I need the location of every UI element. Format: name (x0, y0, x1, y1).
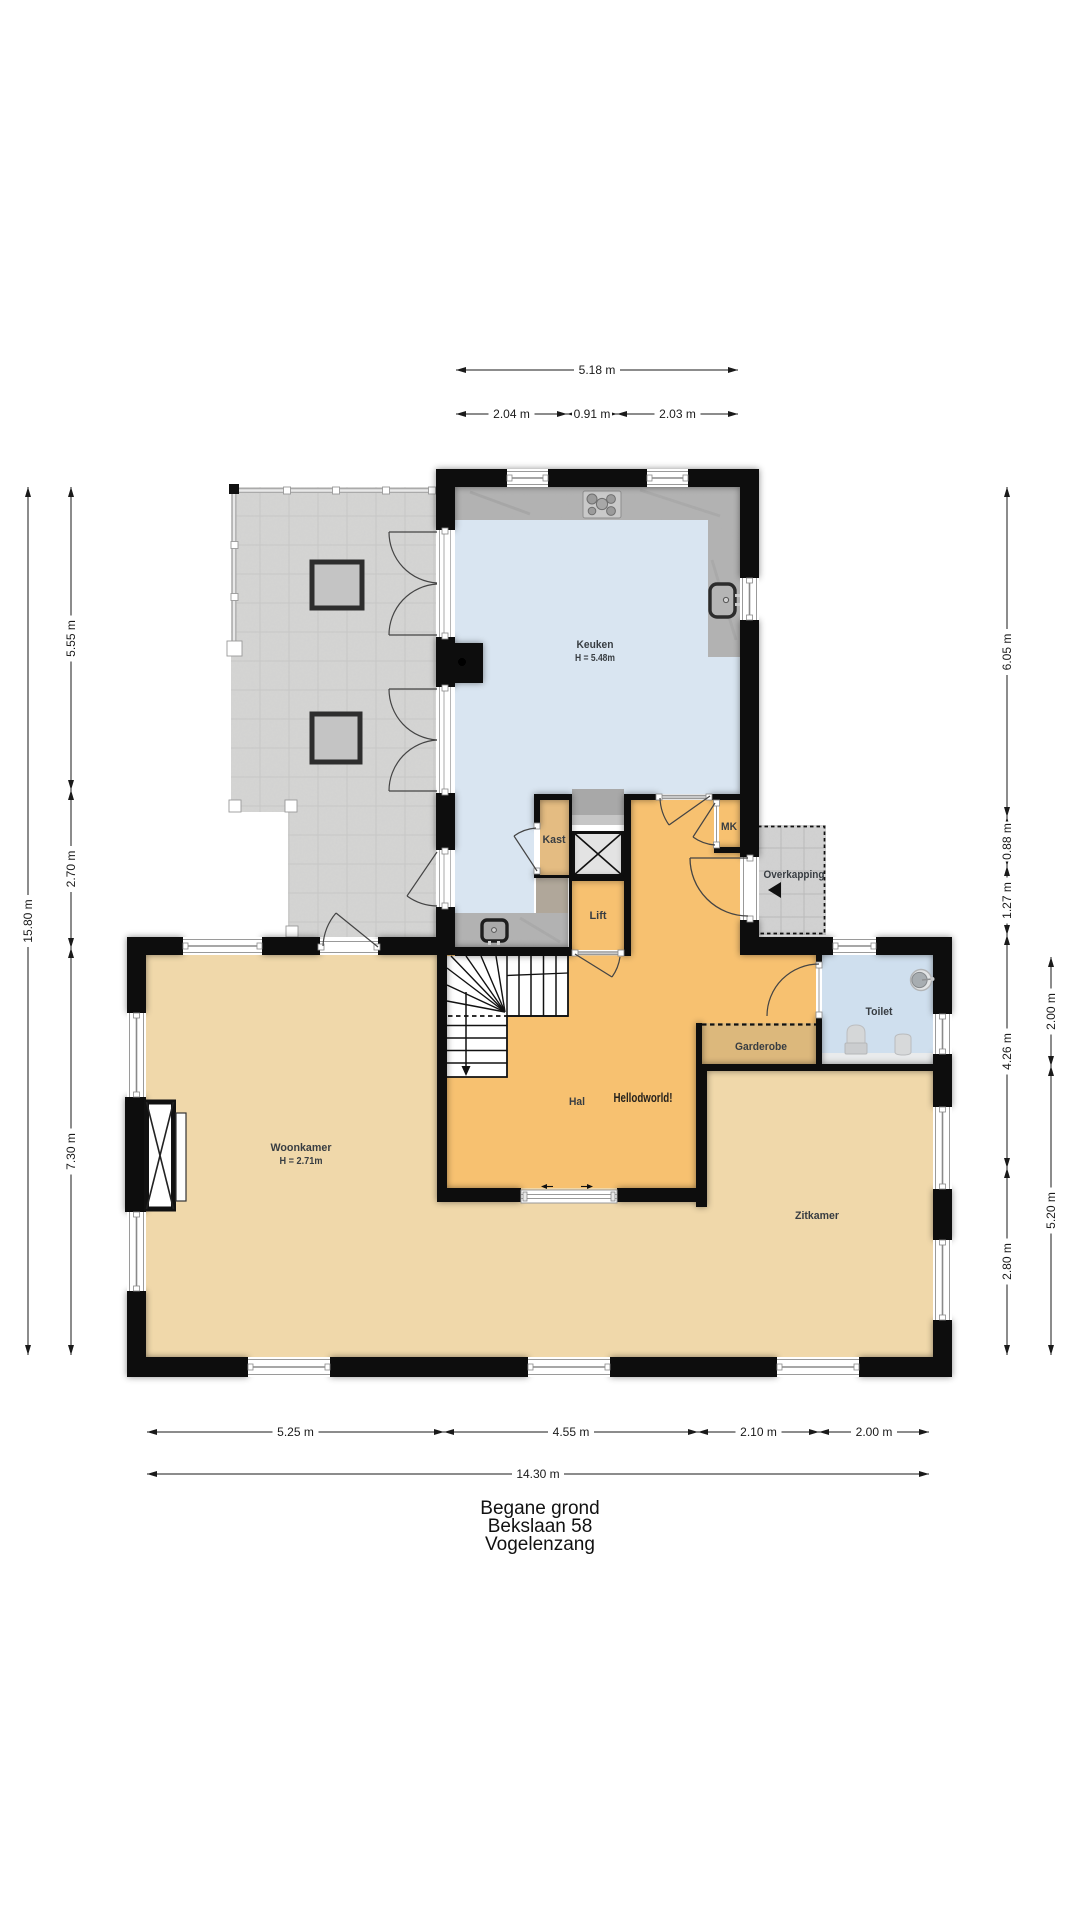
svg-text:2.70 m: 2.70 m (64, 851, 78, 888)
svg-text:2.04 m: 2.04 m (493, 407, 530, 421)
svg-text:Woonkamer: Woonkamer (271, 1142, 333, 1154)
svg-text:Kast: Kast (543, 834, 566, 846)
svg-text:Hellodworld!: Hellodworld! (614, 1091, 673, 1105)
svg-text:2.03 m: 2.03 m (659, 407, 696, 421)
svg-text:4.55 m: 4.55 m (553, 1425, 590, 1439)
svg-text:5.25 m: 5.25 m (277, 1425, 314, 1439)
svg-text:7.30 m: 7.30 m (64, 1133, 78, 1170)
svg-text:0.88 m: 0.88 m (1000, 823, 1014, 860)
svg-text:4.26 m: 4.26 m (1000, 1033, 1014, 1070)
svg-text:Vogelenzang: Vogelenzang (485, 1534, 595, 1555)
svg-text:Lift: Lift (590, 910, 607, 922)
svg-text:Garderobe: Garderobe (735, 1041, 787, 1053)
svg-text:2.80 m: 2.80 m (1000, 1243, 1014, 1280)
svg-text:Toilet: Toilet (866, 1006, 893, 1018)
svg-text:Overkapping: Overkapping (764, 869, 825, 881)
svg-text:H = 2.71m: H = 2.71m (280, 1156, 323, 1167)
svg-text:Keuken: Keuken (577, 639, 614, 651)
svg-text:14.30 m: 14.30 m (516, 1467, 559, 1481)
svg-text:0.91 m: 0.91 m (574, 407, 611, 421)
svg-text:6.05 m: 6.05 m (1000, 634, 1014, 671)
svg-text:2.00 m: 2.00 m (856, 1425, 893, 1439)
svg-text:5.20 m: 5.20 m (1044, 1192, 1058, 1229)
svg-text:MK: MK (721, 821, 737, 833)
svg-text:H = 5.48m: H = 5.48m (575, 653, 615, 664)
svg-text:Zitkamer: Zitkamer (795, 1210, 840, 1222)
svg-text:1.27 m: 1.27 m (1000, 882, 1014, 919)
svg-text:2.00 m: 2.00 m (1044, 993, 1058, 1030)
svg-text:5.18 m: 5.18 m (579, 363, 616, 377)
svg-text:2.10 m: 2.10 m (740, 1425, 777, 1439)
svg-text:5.55 m: 5.55 m (64, 620, 78, 657)
svg-text:Hal: Hal (569, 1096, 585, 1108)
svg-text:15.80 m: 15.80 m (21, 899, 35, 942)
